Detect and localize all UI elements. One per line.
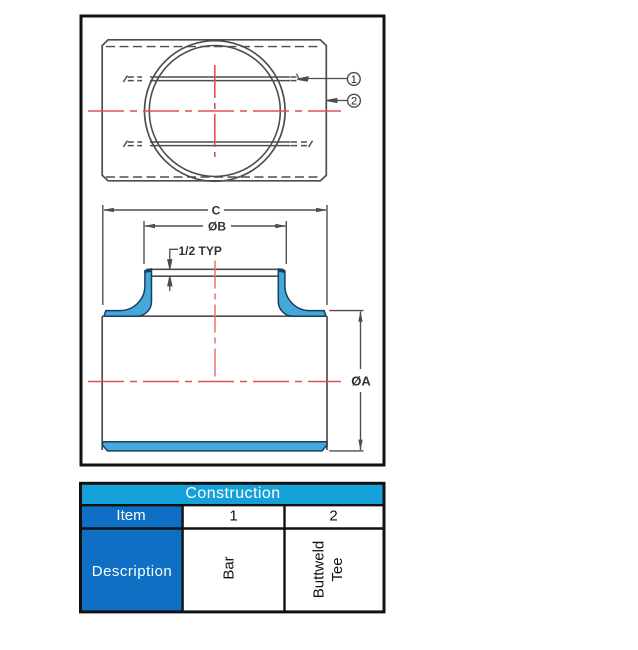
svg-text:Item: Item [116, 507, 145, 524]
svg-text:ØB: ØB [208, 220, 226, 234]
svg-text:2: 2 [329, 508, 337, 525]
svg-text:Construction: Construction [185, 485, 280, 502]
svg-text:Buttweld: Buttweld [310, 541, 327, 599]
svg-text:Bar: Bar [221, 556, 238, 579]
svg-text:ØA: ØA [351, 374, 371, 389]
svg-text:Tee: Tee [329, 557, 346, 581]
svg-text:C: C [212, 204, 221, 218]
svg-text:2: 2 [351, 96, 357, 108]
svg-text:Description: Description [92, 563, 173, 580]
svg-text:1/2 TYP: 1/2 TYP [179, 244, 222, 258]
svg-text:1: 1 [229, 508, 237, 525]
svg-text:1: 1 [351, 74, 357, 86]
